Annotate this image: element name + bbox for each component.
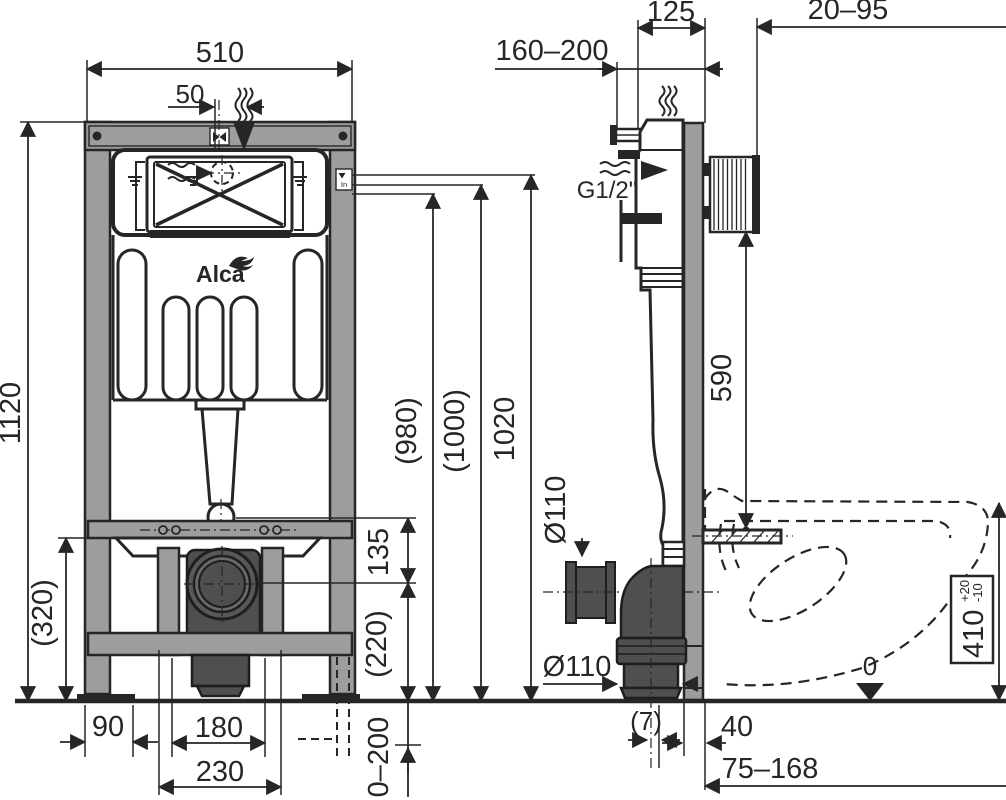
dim-dia110-vertical: Ø110 [540,476,572,545]
dim-160-200: 160–200 [496,35,609,67]
bottom-cross-rail [88,633,352,655]
installation-drawing-page: Alca 510 [0,0,1006,800]
datum-triangle-icon [856,683,884,701]
dim-1020: 1020 [489,397,521,462]
dim-320: (320) [27,579,59,647]
install-level-box: In [336,169,352,190]
cistern-side-profile [636,120,683,565]
datum-zero: 0 [863,651,877,681]
dim-90: 90 [92,711,124,743]
frame-right-column [330,122,355,694]
flush-pipe [202,409,238,504]
dim-75-168: 75–168 [722,753,819,785]
bowl-fixing-stud [692,530,793,543]
drain-elbow [621,566,683,638]
wc-frame-technical-drawing: Alca 510 [0,0,1006,800]
dim-125: 125 [647,0,695,28]
side-view: 160–200 125 20–95 [495,0,1006,790]
dim-0-200: 0–200 [363,717,395,798]
frame-side-profile [684,123,703,700]
dim-220: (220) [361,610,393,678]
dim-50: 50 [176,79,205,109]
brand-logo: Alca [196,257,254,287]
level-box-label: In [341,180,347,189]
dim-40: 40 [721,711,753,743]
tank-rib [118,250,146,400]
tank-rib [163,297,189,400]
tank-rib [197,297,223,400]
corner-screw-right [339,132,348,141]
dim-410: 410 [958,610,990,658]
dim-590: 590 [706,354,738,402]
dim-410-tol-minus: -10 [970,583,985,602]
front-view: Alca 510 [0,37,535,797]
dim-230: 230 [196,756,244,788]
dim-20-95: 20–95 [808,0,889,26]
tank-rib [231,297,257,400]
dim-7: (7) [630,706,662,736]
dim-980: (980) [391,397,423,465]
dim-510: 510 [196,37,244,69]
corner-screw-left [93,132,102,141]
dim-135: 135 [363,528,395,576]
drain-outlet [192,655,249,686]
flush-bend-collar [663,542,684,566]
dim-180: 180 [195,712,243,744]
dim-1000: (1000) [439,389,471,473]
frame-left-column [85,122,110,694]
floor-datum: 0 [856,651,884,701]
dim-1120: 1120 [0,382,27,444]
flush-valve-seat [620,213,662,224]
thread-label: G1/2" [577,177,638,204]
dim-dia110-horizontal: Ø110 [543,651,612,683]
wall-bracket [702,155,760,234]
tank-rib [294,250,322,400]
